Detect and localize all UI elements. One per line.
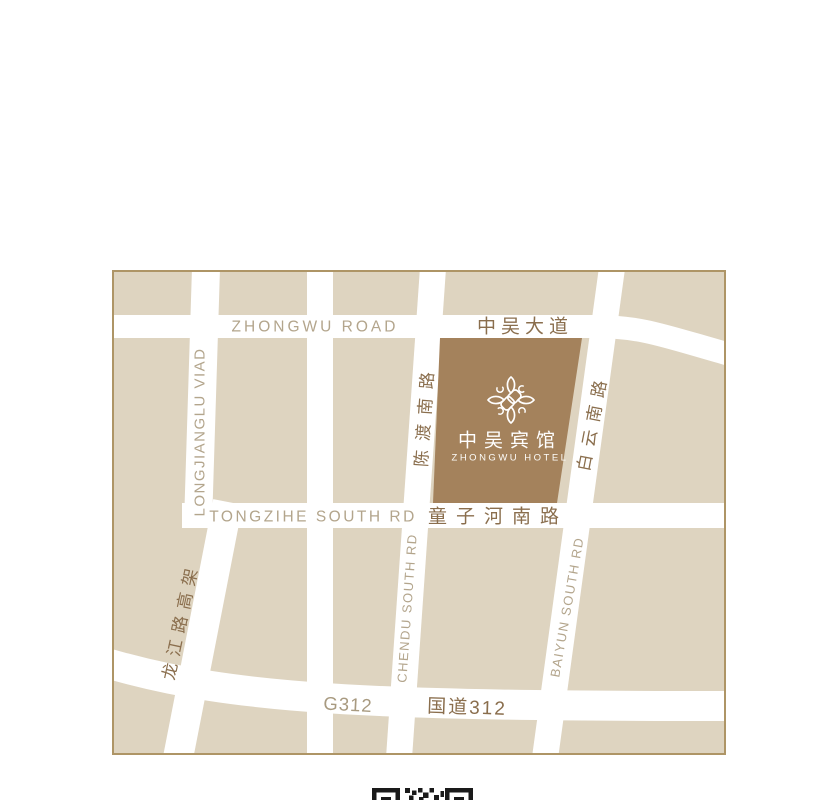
qr-code-top-sliver	[372, 788, 473, 800]
label-longjianglu-viaduct-en: LONGJIANGLU VIAD	[193, 347, 208, 516]
label-zhongwu-road-en: ZHONGWU ROAD	[232, 319, 399, 335]
hotel-name-cn: 中吴宾馆	[458, 432, 562, 451]
qr-code	[372, 788, 473, 800]
label-g312-en: G312	[323, 694, 373, 715]
location-map: ZHONGWU ROAD 中吴大道 LONGJIANGLU VIAD 龙江路高架…	[112, 270, 726, 755]
label-g312-cn: 国道312	[427, 697, 507, 719]
hotel-block	[433, 338, 582, 503]
hotel-name-en: ZHONGWU HOTEL	[452, 453, 569, 463]
label-zhongwu-avenue-cn: 中吴大道	[477, 318, 573, 337]
label-tongzihe-south-cn: 童子河南路	[428, 508, 568, 527]
label-tongzihe-south-en: TONGZIHE SOUTH RD	[209, 509, 417, 525]
